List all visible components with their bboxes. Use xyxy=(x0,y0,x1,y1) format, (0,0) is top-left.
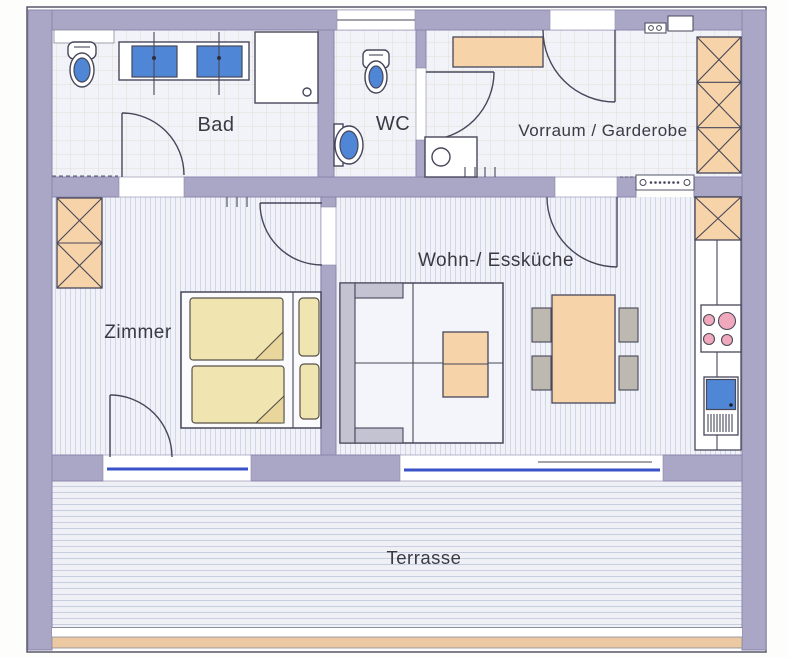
shower xyxy=(255,32,318,103)
kitchen-sink-icon xyxy=(704,377,738,435)
pillow-bottom xyxy=(300,364,319,419)
bad-door-opening xyxy=(119,177,184,197)
wc-toilet-icon xyxy=(363,50,389,93)
sofa-back xyxy=(340,283,355,443)
room-label-bad: Bad xyxy=(197,114,234,136)
kitchen-door-opening xyxy=(555,177,617,197)
pillow-top xyxy=(299,298,319,356)
terrasse-border-strip xyxy=(52,637,742,648)
zimmer-door-opening xyxy=(321,207,336,265)
room-label-terrasse: Terrasse xyxy=(387,547,462,568)
dining-table xyxy=(552,295,615,403)
zimmer-wardrobe xyxy=(57,198,102,288)
sideboard xyxy=(453,37,543,67)
wc-sink-icon xyxy=(334,124,363,166)
dining-chair xyxy=(619,308,638,342)
kitchen-counter xyxy=(695,197,741,450)
sofa-armrest-top xyxy=(355,283,403,298)
kitchen-cabinet xyxy=(695,197,741,240)
entrance-wall-box xyxy=(668,16,693,31)
bad-toilet-icon xyxy=(68,42,96,87)
dining-chair xyxy=(532,308,551,342)
sliding-terrace-door-opening xyxy=(400,455,663,481)
sofa xyxy=(340,283,503,443)
entrance-opening xyxy=(550,10,615,30)
stove-icon xyxy=(701,305,741,352)
vorraum-wardrobe xyxy=(697,37,741,173)
dining-chair xyxy=(532,356,551,390)
floor-plan: Bad WC Vorraum / Garderobe Zimmer Wohn-/… xyxy=(0,0,788,658)
sofa-armrest-bottom xyxy=(355,428,403,443)
washing-machine-icon xyxy=(425,137,477,177)
terrasse-edge xyxy=(52,628,742,648)
room-label-vorraum: Vorraum / Garderobe xyxy=(518,121,687,140)
wc-door-opening xyxy=(416,68,426,140)
room-label-zimmer: Zimmer xyxy=(104,322,172,343)
bed xyxy=(181,292,321,428)
floor-plan-drawing: Bad WC Vorraum / Garderobe Zimmer Wohn-/… xyxy=(0,0,788,658)
room-label-wohnkueche: Wohn-/ Essküche xyxy=(418,250,574,271)
room-label-wc: WC xyxy=(376,113,410,135)
bad-wall-niche xyxy=(54,30,114,43)
doorbell-icon xyxy=(645,23,666,33)
dining-chair xyxy=(619,356,638,390)
